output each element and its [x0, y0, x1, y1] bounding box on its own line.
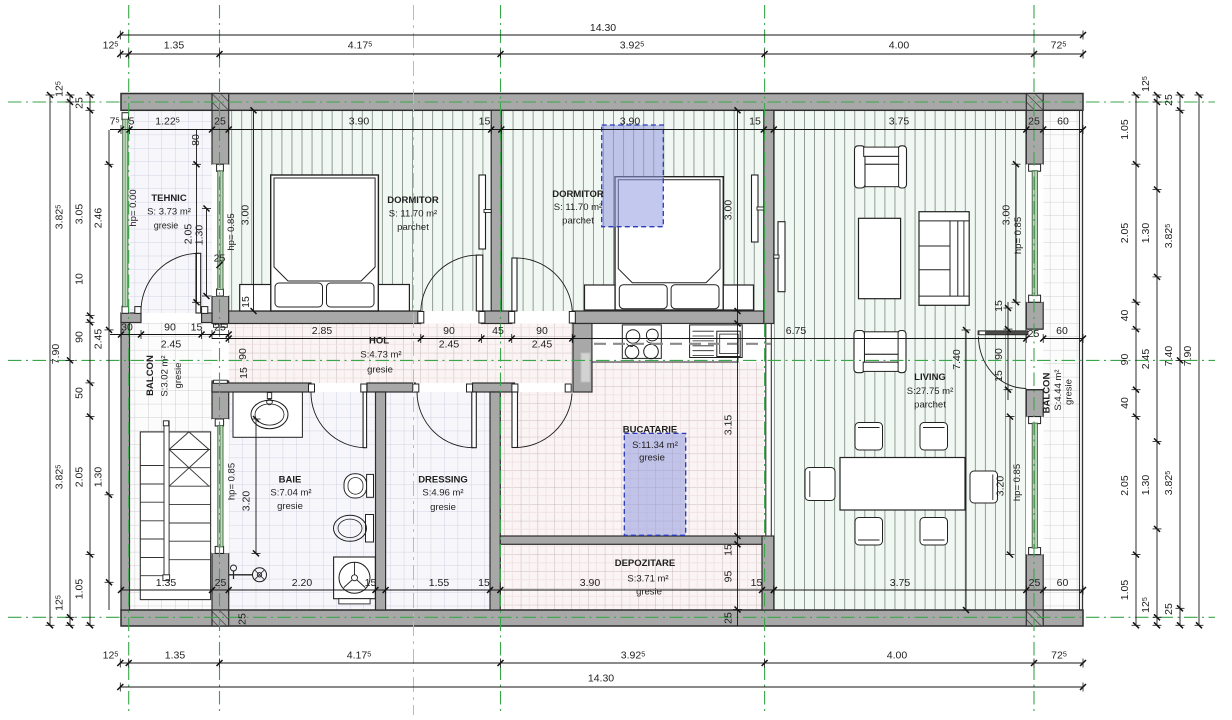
svg-text:3.75: 3.75 — [889, 116, 910, 128]
svg-text:15: 15 — [238, 367, 250, 379]
svg-text:2.45: 2.45 — [532, 339, 553, 351]
svg-text:15: 15 — [479, 116, 491, 128]
svg-text:3.90: 3.90 — [620, 116, 641, 128]
svg-text:40: 40 — [1119, 310, 1131, 322]
svg-text:90: 90 — [536, 325, 548, 337]
svg-text:hp= 0.85: hp= 0.85 — [1012, 464, 1023, 501]
svg-text:4.00: 4.00 — [889, 40, 910, 52]
svg-text:15: 15 — [993, 300, 1005, 312]
svg-text:hp= 0.85: hp= 0.85 — [226, 213, 237, 250]
svg-text:15: 15 — [749, 116, 761, 128]
svg-text:2.05: 2.05 — [1119, 223, 1131, 244]
svg-text:gresie: gresie — [636, 587, 662, 598]
svg-text:3.00: 3.00 — [1001, 205, 1013, 226]
svg-text:15: 15 — [751, 577, 763, 589]
svg-text:7.90: 7.90 — [50, 344, 62, 365]
svg-text:15: 15 — [240, 296, 252, 308]
svg-text:hp= 0.00: hp= 0.00 — [128, 189, 139, 226]
svg-text:3.20: 3.20 — [241, 491, 253, 512]
svg-text:1.05: 1.05 — [74, 579, 86, 600]
svg-text:15: 15 — [191, 322, 203, 334]
svg-text:1.55: 1.55 — [429, 577, 450, 589]
svg-text:2.85: 2.85 — [312, 325, 333, 337]
svg-text:3.15: 3.15 — [723, 415, 735, 436]
svg-text:1.05: 1.05 — [1119, 580, 1131, 601]
svg-text:90: 90 — [237, 348, 249, 360]
svg-text:15: 15 — [365, 577, 377, 589]
svg-text:25: 25 — [1028, 116, 1040, 128]
svg-text:14.30: 14.30 — [590, 22, 616, 34]
svg-text:15: 15 — [993, 370, 1005, 382]
svg-text:gresie: gresie — [430, 502, 456, 513]
svg-text:BALCON: BALCON — [145, 355, 156, 396]
svg-text:S:7.04 m²: S:7.04 m² — [270, 488, 311, 499]
svg-text:7.90: 7.90 — [1182, 346, 1194, 367]
svg-text:2.46: 2.46 — [93, 208, 105, 229]
svg-text:3.00: 3.00 — [723, 200, 735, 221]
svg-text:DEPOZITARE: DEPOZITARE — [615, 558, 676, 569]
svg-text:S:4.96 m²: S:4.96 m² — [422, 488, 463, 499]
svg-text:95: 95 — [723, 571, 735, 583]
svg-text:25: 25 — [1029, 577, 1041, 589]
svg-text:2.45: 2.45 — [1140, 349, 1152, 370]
svg-text:S: 11.70 m²: S: 11.70 m² — [554, 202, 602, 213]
svg-text:DORMITOR: DORMITOR — [387, 195, 439, 206]
svg-text:1.30: 1.30 — [1140, 475, 1152, 496]
svg-text:1.30: 1.30 — [1140, 223, 1152, 244]
svg-text:parchet: parchet — [914, 400, 946, 411]
svg-text:1.30: 1.30 — [93, 467, 105, 488]
svg-text:S:3.71 m²: S:3.71 m² — [627, 574, 668, 585]
svg-text:25: 25 — [237, 613, 249, 625]
svg-text:45: 45 — [492, 325, 504, 337]
svg-text:25: 25 — [1163, 603, 1175, 615]
svg-text:parchet: parchet — [397, 222, 429, 233]
svg-text:BUCATARIE: BUCATARIE — [623, 425, 678, 436]
svg-text:80: 80 — [190, 134, 202, 146]
svg-text:1.35: 1.35 — [164, 40, 185, 52]
svg-text:25: 25 — [214, 253, 226, 265]
svg-text:2.45: 2.45 — [161, 339, 182, 351]
svg-text:gresie: gresie — [173, 363, 184, 389]
svg-text:gresie: gresie — [639, 453, 665, 464]
svg-text:S:4.44 m²: S:4.44 m² — [1053, 369, 1064, 410]
svg-text:90: 90 — [74, 331, 86, 343]
svg-text:parchet: parchet — [562, 216, 594, 227]
svg-text:DRESSING: DRESSING — [418, 475, 468, 486]
svg-text:2.45: 2.45 — [439, 339, 460, 351]
svg-text:gresie: gresie — [1064, 379, 1075, 405]
svg-text:50: 50 — [74, 387, 86, 399]
svg-text:60: 60 — [1057, 577, 1069, 589]
svg-text:5: 5 — [129, 116, 135, 128]
svg-text:TEHNIC: TEHNIC — [151, 193, 187, 204]
svg-text:2.05: 2.05 — [74, 467, 86, 488]
svg-text:90: 90 — [443, 325, 455, 337]
svg-text:S:27.75 m²: S:27.75 m² — [907, 386, 953, 397]
svg-text:90: 90 — [164, 322, 176, 334]
svg-text:3.90: 3.90 — [349, 116, 370, 128]
svg-text:hp= 0.85: hp= 0.85 — [227, 463, 238, 500]
svg-text:HOL: HOL — [369, 336, 389, 347]
svg-text:BAIE: BAIE — [279, 475, 302, 486]
svg-text:1.35: 1.35 — [156, 577, 177, 589]
svg-text:gresie: gresie — [154, 221, 179, 231]
svg-text:LIVING: LIVING — [914, 372, 946, 383]
svg-text:25: 25 — [74, 97, 86, 109]
svg-text:90: 90 — [993, 348, 1005, 360]
svg-text:10: 10 — [74, 273, 86, 285]
svg-text:4.00: 4.00 — [887, 650, 908, 662]
svg-text:DORMITOR: DORMITOR — [552, 189, 604, 200]
svg-text:hp= 0.85: hp= 0.85 — [1013, 217, 1024, 254]
svg-text:25: 25 — [214, 116, 226, 128]
svg-text:60: 60 — [1056, 325, 1068, 337]
svg-text:3.05: 3.05 — [74, 204, 86, 225]
svg-text:S:4.73 m²: S:4.73 m² — [360, 350, 401, 361]
svg-text:25: 25 — [723, 612, 735, 624]
svg-text:1.05: 1.05 — [1119, 119, 1131, 140]
svg-text:90: 90 — [1119, 354, 1131, 366]
svg-text:25: 25 — [1163, 94, 1175, 106]
svg-text:2.20: 2.20 — [292, 577, 313, 589]
svg-text:25: 25 — [215, 577, 227, 589]
svg-text:2.45: 2.45 — [93, 329, 105, 350]
svg-text:3.75: 3.75 — [890, 577, 911, 589]
svg-text:25: 25 — [1028, 328, 1040, 340]
svg-text:BALCON: BALCON — [1042, 373, 1053, 414]
svg-text:gresie: gresie — [277, 501, 303, 512]
svg-text:3.90: 3.90 — [580, 577, 601, 589]
svg-text:14.30: 14.30 — [588, 673, 614, 685]
svg-text:1.30: 1.30 — [194, 225, 206, 246]
svg-text:3.00: 3.00 — [240, 205, 252, 226]
svg-text:25: 25 — [214, 322, 226, 334]
svg-text:S: 3.73 m²: S: 3.73 m² — [147, 207, 191, 218]
svg-text:3.20: 3.20 — [995, 476, 1007, 497]
svg-text:7.40: 7.40 — [951, 349, 963, 370]
svg-text:60: 60 — [1057, 116, 1069, 128]
svg-text:S: 11.70 m²: S: 11.70 m² — [389, 209, 437, 220]
svg-text:gresie: gresie — [367, 365, 393, 376]
svg-text:2.05: 2.05 — [1119, 475, 1131, 496]
svg-text:6.75: 6.75 — [786, 325, 807, 337]
svg-text:15: 15 — [723, 544, 735, 556]
svg-text:1.35: 1.35 — [165, 650, 186, 662]
svg-text:7.40: 7.40 — [1163, 346, 1175, 367]
svg-text:40: 40 — [1119, 397, 1131, 409]
svg-text:S:3.02 m²: S:3.02 m² — [160, 355, 171, 396]
svg-text:30: 30 — [121, 322, 133, 334]
svg-text:S:11.34 m²: S:11.34 m² — [632, 440, 678, 451]
svg-text:15: 15 — [478, 577, 490, 589]
